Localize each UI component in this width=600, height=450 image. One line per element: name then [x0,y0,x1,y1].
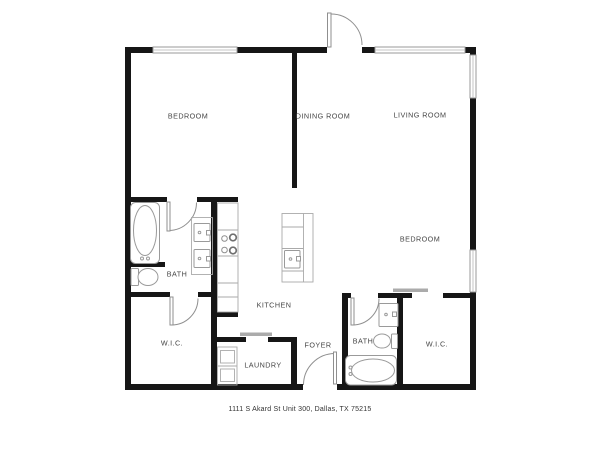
wall-kitchen-stub [217,312,238,317]
kitchen-counter [218,203,239,312]
bath1-door-leaf [167,202,170,231]
room-label-bath2: BATH [353,337,373,346]
stove-burner [222,247,228,253]
bath2-door-leaf [351,298,354,325]
bathtub2-basin [352,359,395,382]
wall-wic1-top [198,292,211,297]
address-caption: 1111 S Akard St Unit 300, Dallas, TX 752… [229,406,372,413]
bathtub1-faucet [141,257,144,260]
wall-bedroom1-bath [197,197,238,202]
stove-burner [230,234,237,241]
floor-plan-page: BEDROOM DINING ROOM LIVING ROOM BEDROOM … [0,0,600,450]
wall-laundry-top [217,337,246,342]
bath2-sink-faucet [393,312,397,317]
vanity1-sink-1-drain [198,231,201,234]
balcony-door-arc [331,14,362,45]
island-sink-drain [289,258,292,261]
wall-laundry-right [291,342,297,384]
island-sink-faucet [297,257,301,262]
room-label-dining: DINING ROOM [296,112,350,121]
toilet2-bowl [374,334,391,348]
stove-burner [230,247,237,254]
wall-right [470,292,476,390]
wic1-door-arc [172,299,199,326]
bathtub1-basin [134,206,157,256]
wall-top [237,47,327,53]
bathtub2-faucet [349,366,352,369]
kitchen-island [282,214,313,283]
room-label-living: LIVING ROOM [394,111,447,120]
wall-wic1-top [125,292,170,297]
wic2-sliding-door [393,289,428,293]
laundry-sliding-door [240,333,272,337]
wall-bath-kitchen [211,197,217,390]
vanity1-sink-2-drain [198,257,201,260]
bathtub2-faucet [349,373,352,376]
laundry-fixtures [218,347,238,385]
room-label-bath1: BATH [167,270,187,279]
room-label-foyer: FOYER [304,341,331,350]
floor-plan: BEDROOM DINING ROOM LIVING ROOM BEDROOM … [0,0,600,450]
kitchen-fixtures [218,203,314,312]
toilet1-bowl [138,269,158,286]
room-label-kitchen: KITCHEN [257,301,292,310]
entry-door-leaf [334,352,337,384]
wall-bedroom1-bath [131,197,167,202]
room-label-laundry: LAUNDRY [244,361,281,370]
wall-wic2-top [443,293,470,298]
bath1-door-arc [169,203,197,231]
bath2-door-arc [353,299,380,326]
wall-bath2-top [348,293,351,298]
wall-right [470,98,476,250]
room-label-bedroom1: BEDROOM [168,112,208,121]
wall-bedroom1-dining [292,53,297,188]
bathtub1-faucet [147,257,150,260]
wic1-door-leaf [170,297,173,325]
wall-bath2-top [378,293,412,298]
wall-top [362,47,375,53]
wall-right [470,47,476,55]
wall-laundry-top [268,337,297,342]
room-label-wic1: W.I.C. [161,339,183,348]
washer-inner [221,351,235,364]
vanity1-sink-2-faucet [207,257,211,262]
vanity1-sink-1-faucet [207,231,211,236]
dryer-inner [221,369,235,382]
balcony-door-leaf [328,13,332,47]
stove-burner [222,236,228,242]
toilet1-tank [131,269,139,286]
entry-door-arc [304,354,336,386]
toilet2-tank [392,334,398,349]
room-label-bedroom2: BEDROOM [400,235,440,244]
bath2-sink-drain [385,313,388,316]
room-label-wic2: W.I.C. [426,340,448,349]
